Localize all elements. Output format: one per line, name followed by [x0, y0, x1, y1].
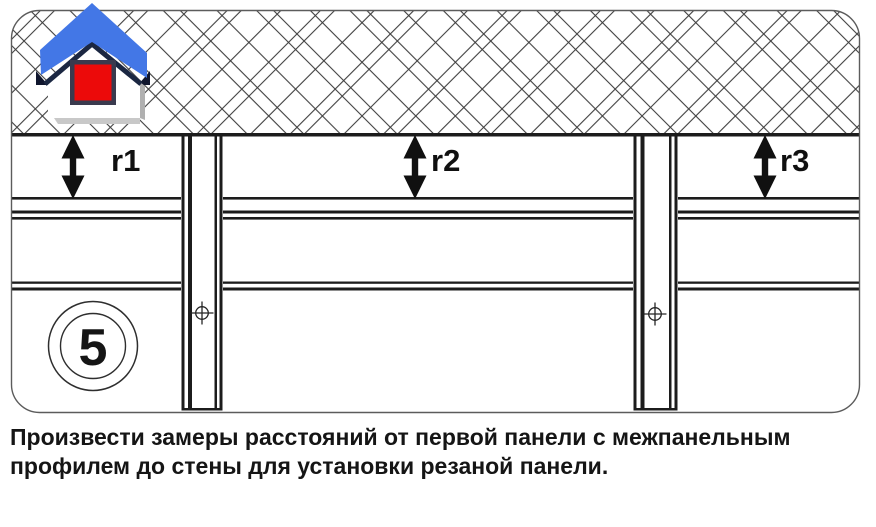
panel-joint-line-1: [11, 211, 860, 214]
profile-edge: [182, 137, 185, 409]
profile-bottom-cap: [182, 408, 223, 411]
instruction-figure: r1 r2 r3 5 Произвести замеры расстояний …: [0, 0, 876, 527]
profile-edge: [675, 137, 678, 409]
profile-edge: [634, 137, 637, 409]
measure-arrow-r2: [404, 135, 427, 199]
r2-label: r2: [431, 143, 460, 178]
profile-edge: [220, 137, 223, 409]
window: [75, 65, 112, 101]
house-side-shadow: [140, 82, 145, 120]
caption-line-2: профилем до стены для установки резаной …: [10, 452, 870, 481]
panel-joint-line-3: [11, 282, 860, 284]
panel-joint-line-2: [11, 217, 860, 220]
panel-profile-2: [633, 137, 678, 411]
profile-edge: [641, 137, 645, 409]
panel-bottom-edge-line: [11, 288, 860, 291]
profile-edge: [669, 137, 672, 409]
panel-top-edge-line: [11, 197, 860, 200]
panel-installation-diagram: r1 r2 r3 5: [0, 0, 876, 420]
r3-label: r3: [780, 143, 809, 178]
panel-profile-1: [181, 137, 223, 411]
profile-edge: [215, 137, 218, 409]
measure-arrow-r1: [62, 135, 85, 199]
profile-bottom-cap: [634, 408, 678, 411]
wall-bottom-edge-line: [11, 133, 860, 137]
caption: Произвести замеры расстояний от первой п…: [10, 423, 870, 480]
house-bottom-shadow: [54, 118, 140, 124]
step-number: 5: [79, 319, 108, 377]
profile-edge: [188, 137, 192, 409]
caption-line-1: Произвести замеры расстояний от первой п…: [10, 423, 870, 452]
r1-label: r1: [111, 143, 140, 178]
step-number-badge: 5: [49, 302, 138, 391]
measure-arrow-r3: [754, 135, 777, 199]
panel-lines: [11, 197, 860, 291]
